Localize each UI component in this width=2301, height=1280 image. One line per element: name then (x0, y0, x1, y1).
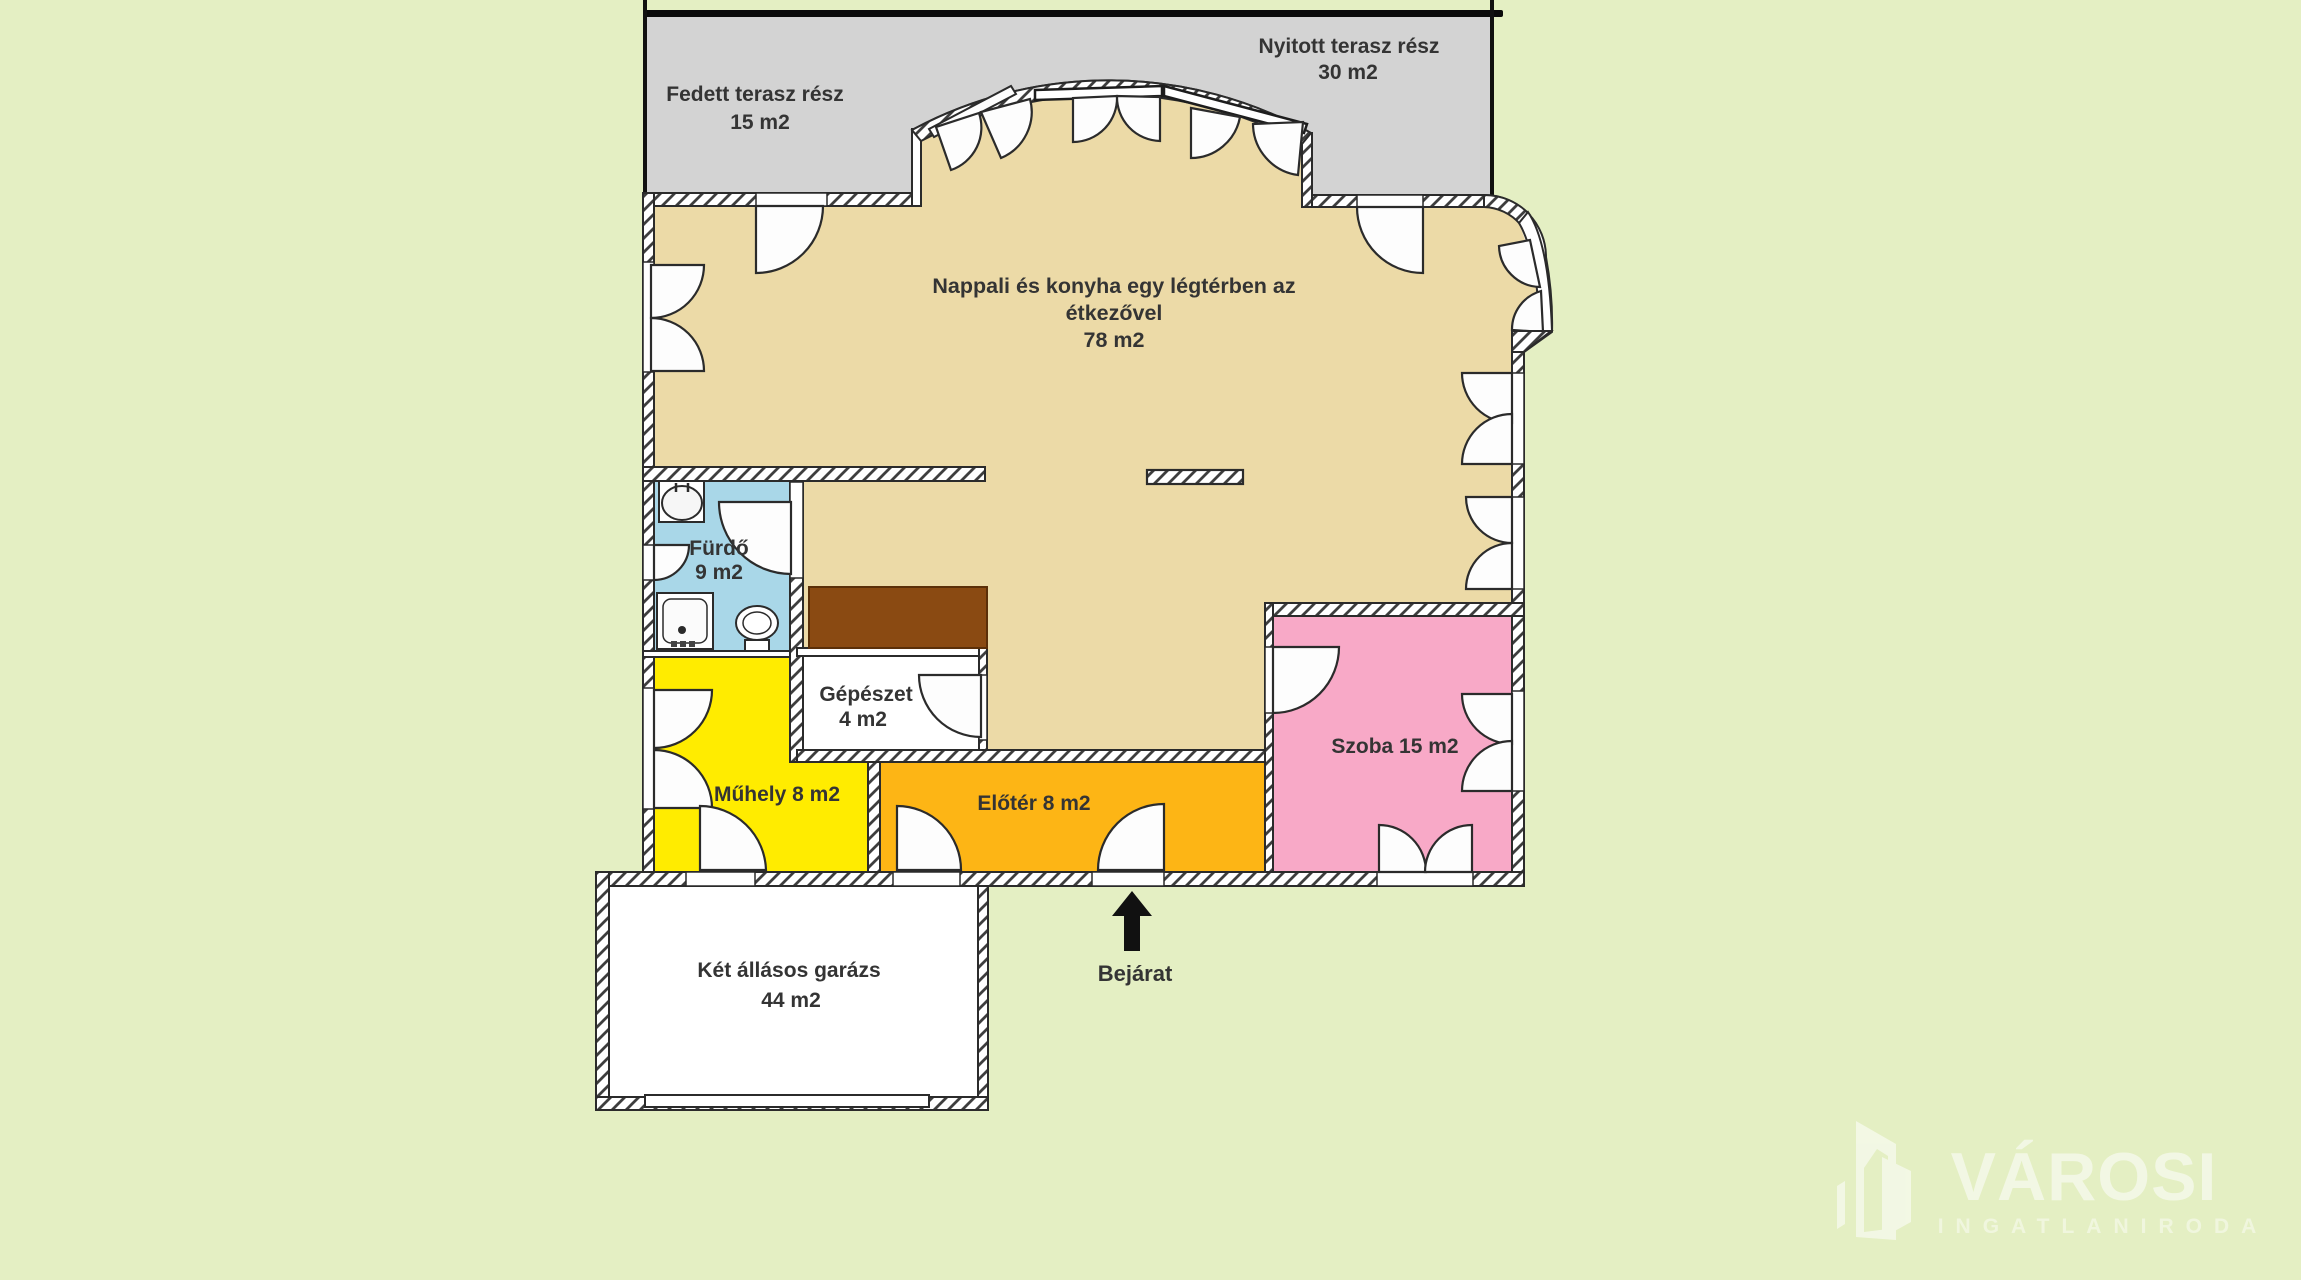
svg-text:9 m2: 9 m2 (695, 561, 743, 584)
svg-text:Nyitott terasz rész: Nyitott terasz rész (1259, 35, 1440, 58)
svg-text:VÁROSI: VÁROSI (1951, 1139, 2218, 1215)
svg-text:Szoba 15 m2: Szoba 15 m2 (1331, 735, 1458, 758)
svg-text:Fürdő: Fürdő (689, 537, 748, 560)
svg-text:Bejárat: Bejárat (1098, 961, 1173, 986)
svg-text:Előtér 8 m2: Előtér 8 m2 (977, 792, 1090, 815)
svg-text:Nappali és konyha egy légtérbe: Nappali és konyha egy légtérben az (932, 274, 1295, 298)
svg-text:44 m2: 44 m2 (761, 989, 821, 1012)
svg-text:étkezővel: étkezővel (1066, 301, 1163, 325)
svg-text:15 m2: 15 m2 (730, 111, 790, 134)
svg-text:Műhely 8 m2: Műhely 8 m2 (714, 783, 840, 806)
svg-text:Fedett terasz rész: Fedett terasz rész (666, 83, 843, 106)
svg-text:30 m2: 30 m2 (1318, 61, 1378, 84)
svg-text:Két állásos garázs: Két állásos garázs (697, 959, 880, 982)
svg-text:INGATLANIRODA: INGATLANIRODA (1938, 1215, 2269, 1238)
svg-text:Gépészet: Gépészet (819, 683, 912, 706)
svg-text:4 m2: 4 m2 (839, 708, 887, 731)
svg-text:78 m2: 78 m2 (1084, 328, 1145, 352)
